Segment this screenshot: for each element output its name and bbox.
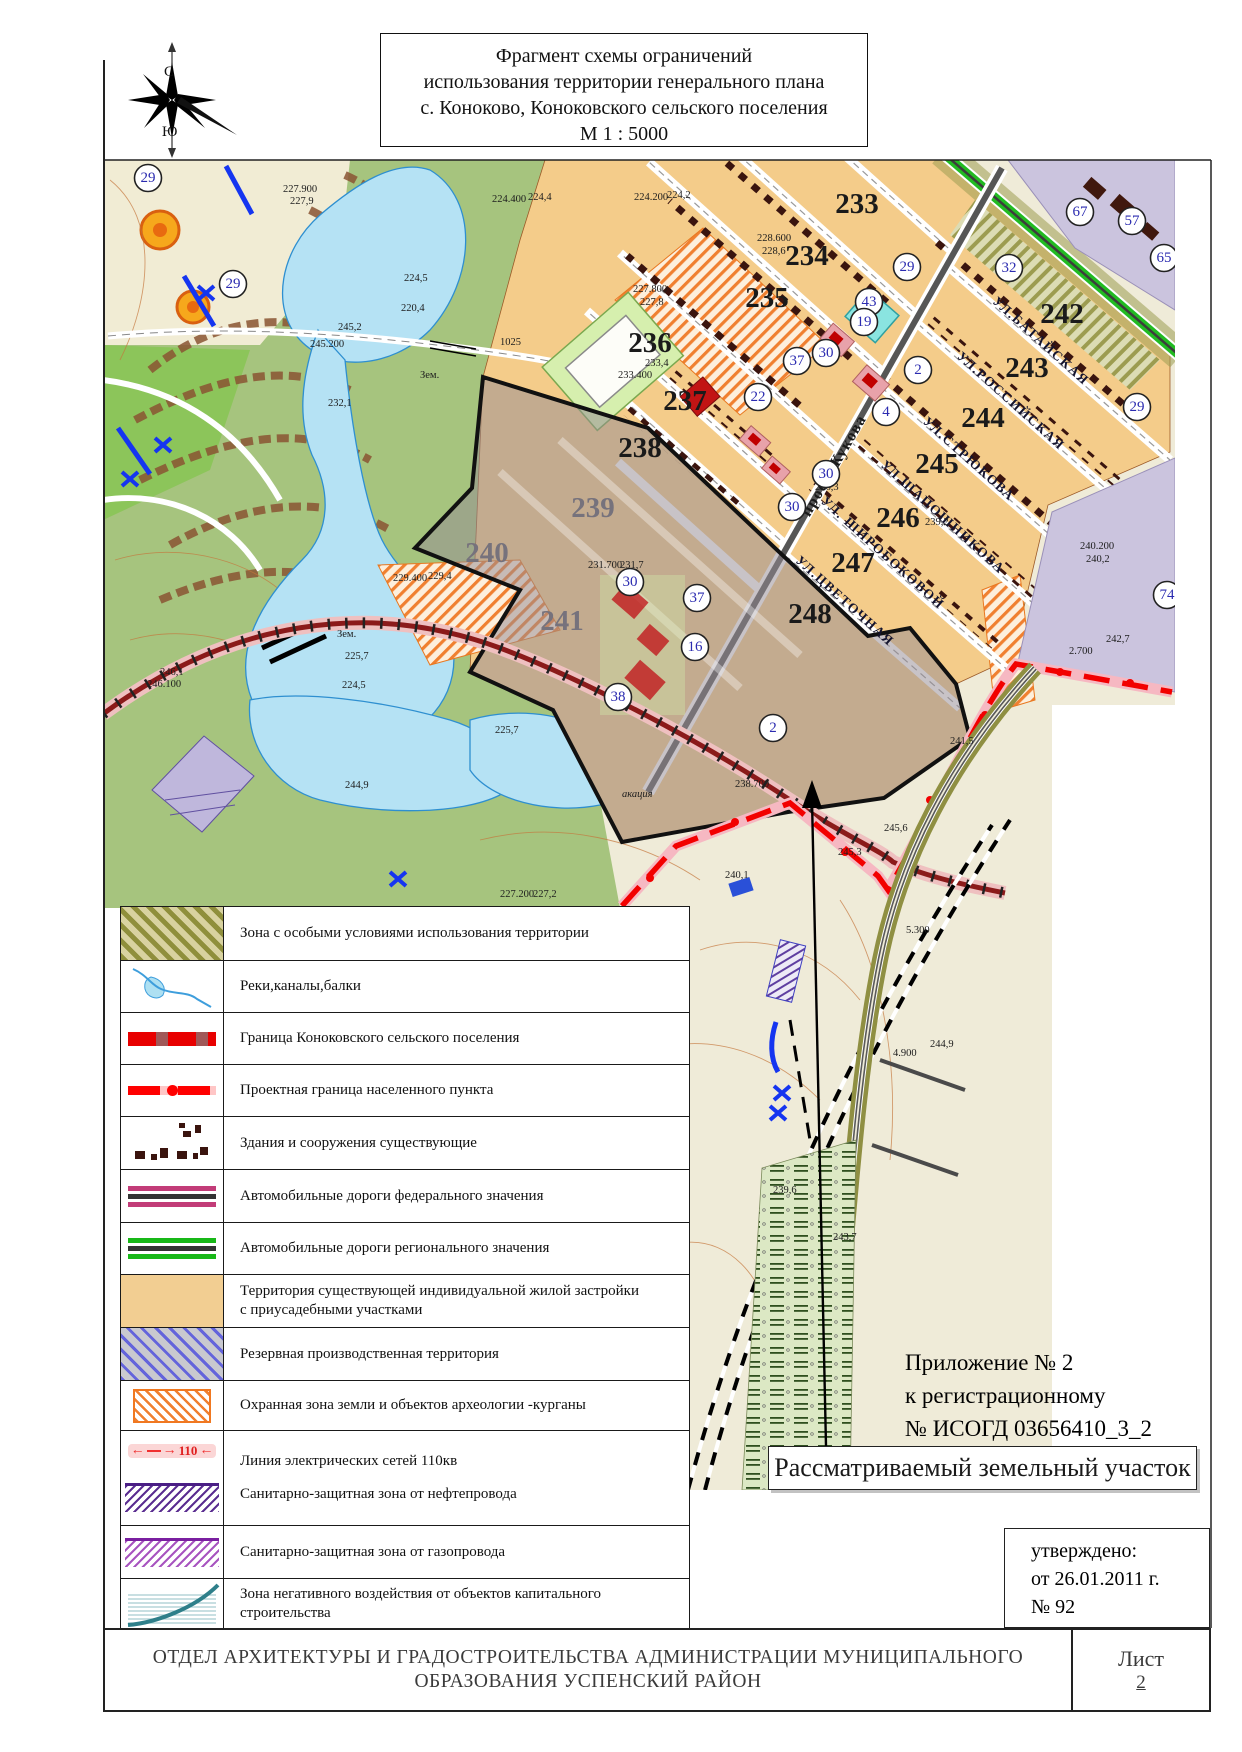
circled-number: 29 [135,165,162,192]
residential-swatch [121,1275,223,1327]
elevation-label: 227.800 [633,284,667,295]
svg-text:74: 74 [1160,587,1176,603]
svg-text:19: 19 [857,314,872,330]
legend-label: Зона негативного воздействия от объектов… [240,1585,683,1623]
block-number: 242 [1040,298,1084,330]
elevation-label: 227.200 [500,889,534,900]
legend-label: Зона с особыми условиями использования т… [240,924,683,943]
attachment-note: Приложение № 2 к регистрационному № ИСОГ… [905,1346,1240,1445]
buildings-swatch [121,1117,224,1169]
reserve-swatch [121,1328,223,1380]
elevation-label: 225,7 [345,651,369,662]
title-scale: М 1 : 5000 [381,121,867,147]
svg-text:37: 37 [690,590,706,606]
attachment-line-2: к регистрационному [905,1379,1240,1412]
svg-text:32: 32 [1002,260,1017,276]
power-line-swatch: ←→ 110 ← [128,1444,217,1458]
elevation-label: 233,4 [645,358,669,369]
approved-line-1: утверждено: [1031,1537,1209,1565]
block-number: 248 [788,598,832,630]
block-number: 235 [745,282,789,314]
map-sheet: 2332342352362372382392402412422432442452… [0,0,1242,1752]
elevation-label: 240,2 [1086,554,1110,565]
legend-label: Граница Коноковского сельского поселения [240,1029,683,1048]
block-number: 238 [618,432,662,464]
legend-label: Автомобильные дороги регионального значе… [240,1239,683,1258]
circled-number: 19 [851,309,878,336]
block-number: 246 [876,502,920,534]
legend-row-special-zone: Зона с особыми условиями использования т… [121,907,689,961]
legend-label: Санитарно-защитная зона от газопровода [240,1543,683,1562]
elevation-label: 227,8 [640,297,664,308]
svg-text:57: 57 [1125,213,1141,229]
buildings-icon [127,1121,217,1165]
legend-row-archaeology: Охранная зона земли и объектов археологи… [121,1381,689,1431]
elevation-label: 239,6 [773,1185,797,1196]
legend-label: Здания и сооружения существующие [240,1134,683,1153]
title-line-3: с. Коноково, Коноковского сельского посе… [381,95,867,121]
legend: Зона с особыми условиями использования т… [120,906,690,1630]
title-line-1: Фрагмент схемы ограничений [381,43,867,69]
legend-row-reserve: Резервная производственная территория [121,1328,689,1381]
elevation-label: 224,4 [528,192,552,203]
elevation-label: 245,6 [884,823,908,834]
svg-text:30: 30 [623,574,638,590]
svg-text:30: 30 [785,499,800,515]
elevation-label: 220,4 [401,303,425,314]
legend-row-negative-impact: Зона негативного воздействия от объектов… [121,1579,689,1629]
svg-text:2: 2 [769,720,777,736]
legend-row-gas: Санитарно-защитная зона от газопровода [121,1526,689,1579]
svg-text:29: 29 [900,259,915,275]
block-number: 239 [571,492,615,524]
elevation-label: 1025 [500,337,521,348]
circled-number: 32 [996,255,1023,282]
elevation-label: 240.200 [1080,541,1114,552]
elevation-label: 5.300 [906,925,930,936]
circled-number: 29 [894,254,921,281]
legend-row-rivers: Реки,каналы,балки [121,961,689,1013]
sheet-number: 2 [1136,1672,1146,1694]
elevation-label: 4.900 [893,1048,917,1059]
block-number: 237 [663,385,707,417]
circled-number: 30 [813,340,840,367]
circled-number: 16 [682,634,709,661]
elevation-label: 245.200 [310,339,344,350]
legend-label: Резервная производственная территория [240,1345,683,1364]
svg-text:30: 30 [819,466,834,482]
elevation-label: 244,9 [345,780,369,791]
circled-number: 29 [1124,394,1151,421]
legend-row-regional-roads: Автомобильные дороги регионального значе… [121,1223,689,1275]
circled-number: 67 [1067,199,1094,226]
project-border-swatch [128,1086,216,1095]
elevation-label: 246,1 [160,667,184,678]
elevation-label: 229,4 [428,571,452,582]
legend-label: Территория существующей индивидуальной ж… [240,1282,683,1301]
svg-text:37: 37 [790,353,806,369]
legend-row-powerline-oil: ←→ 110 ← Линия электрических сетей 110кв… [121,1431,689,1526]
elevation-label: 228.600 [757,233,791,244]
block-number: 241 [540,605,584,637]
svg-text:43: 43 [862,294,877,310]
block-number: 247 [831,547,875,579]
svg-text:2: 2 [914,362,922,378]
circled-number: 65 [1151,245,1178,272]
org-line-1: ОТДЕЛ АРХИТЕКТУРЫ И ГРАДОСТРОИТЕЛЬСТВА А… [153,1646,1023,1670]
negative-impact-swatch [121,1579,224,1629]
circled-number: 30 [779,494,806,521]
organization-title: ОТДЕЛ АРХИТЕКТУРЫ И ГРАДОСТРОИТЕЛЬСТВА А… [105,1630,1071,1710]
sheet-number-cell: Лист 2 [1071,1630,1209,1710]
legend-label: Охранная зона земли и объектов археологи… [240,1396,683,1415]
elevation-label: 245,3 [838,847,862,858]
elevation-label: 224,2 [667,190,691,201]
elevation-label: 231.700 [588,560,622,571]
circled-number: 30 [617,569,644,596]
approved-line-2: от 26.01.2011 г. [1031,1565,1209,1593]
attachment-line-3: № ИСОГД 03656410_3_2 [905,1412,1240,1445]
legend-label-2: Санитарно-защитная зона от нефтепровода [240,1485,683,1504]
elevation-label: 239,2 [925,517,949,528]
svg-text:30: 30 [819,345,834,361]
attachment-line-1: Приложение № 2 [905,1346,1240,1379]
regional-road-swatch [128,1238,216,1259]
elevation-label: 232,1 [328,398,352,409]
circled-number: 30 [813,461,840,488]
svg-text:4: 4 [882,404,890,420]
legend-label: Автомобильные дороги федерального значен… [240,1187,683,1206]
settlement-border-swatch [128,1032,216,1046]
approved-box: утверждено: от 26.01.2011 г. № 92 [1004,1528,1210,1628]
elevation-label: 242,7 [1106,634,1130,645]
elevation-label: 227,2 [533,889,557,900]
federal-road-swatch [128,1186,216,1207]
approved-line-3: № 92 [1031,1593,1209,1621]
legend-label: Реки,каналы,балки [240,977,683,996]
legend-row-settlement-border: Граница Коноковского сельского поселения [121,1013,689,1065]
elevation-label: 233.400 [618,370,652,381]
elevation-label: 227.900 [283,184,317,195]
elevation-label: 228,6 [762,246,786,257]
elevation-label: 227,9 [290,196,314,207]
elevation-label: 224.400 [492,194,526,205]
elevation-label: 225,7 [495,725,519,736]
parcel-label-box: Рассматриваемый земельный участок [768,1446,1197,1490]
footer-bar: ОТДЕЛ АРХИТЕКТУРЫ И ГРАДОСТРОИТЕЛЬСТВА А… [103,1628,1211,1712]
negative-impact-icon [124,1581,220,1627]
legend-label: Проектная граница населенного пункта [240,1081,683,1100]
block-number: 236 [628,327,672,359]
compass-rose: С Ю [128,42,237,158]
elevation-label: 224,5 [404,273,428,284]
rivers-swatch [121,961,224,1012]
river-icon [127,965,217,1009]
elevation-label: 229.400 [393,573,427,584]
elevation-label: 224.200 [634,192,668,203]
elevation-label: 243,7 [833,1232,857,1243]
elevation-label: Зем. [420,370,439,381]
title-box: Фрагмент схемы ограничений использования… [380,33,868,147]
legend-row-federal-roads: Автомобильные дороги федерального значен… [121,1170,689,1223]
elevation-label: акация [622,789,653,800]
oil-pipeline-swatch [125,1483,219,1512]
elevation-label: 246.100 [147,679,181,690]
elevation-label: Зем. [337,629,356,640]
org-line-2: ОБРАЗОВАНИЯ УСПЕНСКИЙ РАЙОН [414,1670,761,1694]
block-number: 244 [961,402,1005,434]
compass-north-label: С [164,64,174,80]
elevation-label: 241,5 [950,736,974,747]
svg-text:67: 67 [1073,204,1089,220]
archaeology-swatch [133,1389,210,1423]
block-number: 233 [835,188,879,220]
legend-label-2: с приусадебными участками [240,1301,683,1320]
block-number: 243 [1005,352,1049,384]
svg-text:22: 22 [751,389,766,405]
block-number: 234 [785,240,829,272]
block-number: 240 [465,537,509,569]
svg-text:29: 29 [1130,399,1145,415]
circled-number: 37 [684,585,711,612]
parcel-label-text: Рассматриваемый земельный участок [774,1453,1190,1483]
elevation-label: 238.700 [735,779,769,790]
special-zone-swatch [121,907,223,960]
circled-number: 37 [784,348,811,375]
svg-text:38: 38 [611,689,626,705]
circled-number: 29 [220,271,247,298]
legend-label: Линия электрических сетей 110кв [240,1452,683,1471]
circled-number: 2 [905,357,932,384]
gas-pipeline-swatch [125,1538,219,1567]
circled-number: 57 [1119,208,1146,235]
svg-text:29: 29 [141,170,156,186]
elevation-label: 244,9 [930,1039,954,1050]
circled-number: 22 [745,384,772,411]
legend-row-residential: Территория существующей индивидуальной ж… [121,1275,689,1328]
elevation-label: 240,1 [725,870,749,881]
svg-text:29: 29 [226,276,241,292]
circled-number: 38 [605,684,632,711]
compass-south-label: Ю [162,124,177,140]
svg-text:16: 16 [688,639,704,655]
legend-row-buildings: Здания и сооружения существующие [121,1117,689,1170]
circled-number: 2 [760,715,787,742]
elevation-label: 224,5 [342,680,366,691]
power-line-voltage: 110 [179,1443,198,1459]
title-line-2: использования территории генерального пл… [381,69,867,95]
circled-number: 4 [873,399,900,426]
elevation-label: 245,2 [338,322,362,333]
elevation-label: 2.700 [1069,646,1093,657]
svg-text:65: 65 [1157,250,1172,266]
sheet-label: Лист [1118,1646,1164,1672]
circled-number: 74 [1154,582,1181,609]
legend-row-project-border: Проектная граница населенного пункта [121,1065,689,1117]
